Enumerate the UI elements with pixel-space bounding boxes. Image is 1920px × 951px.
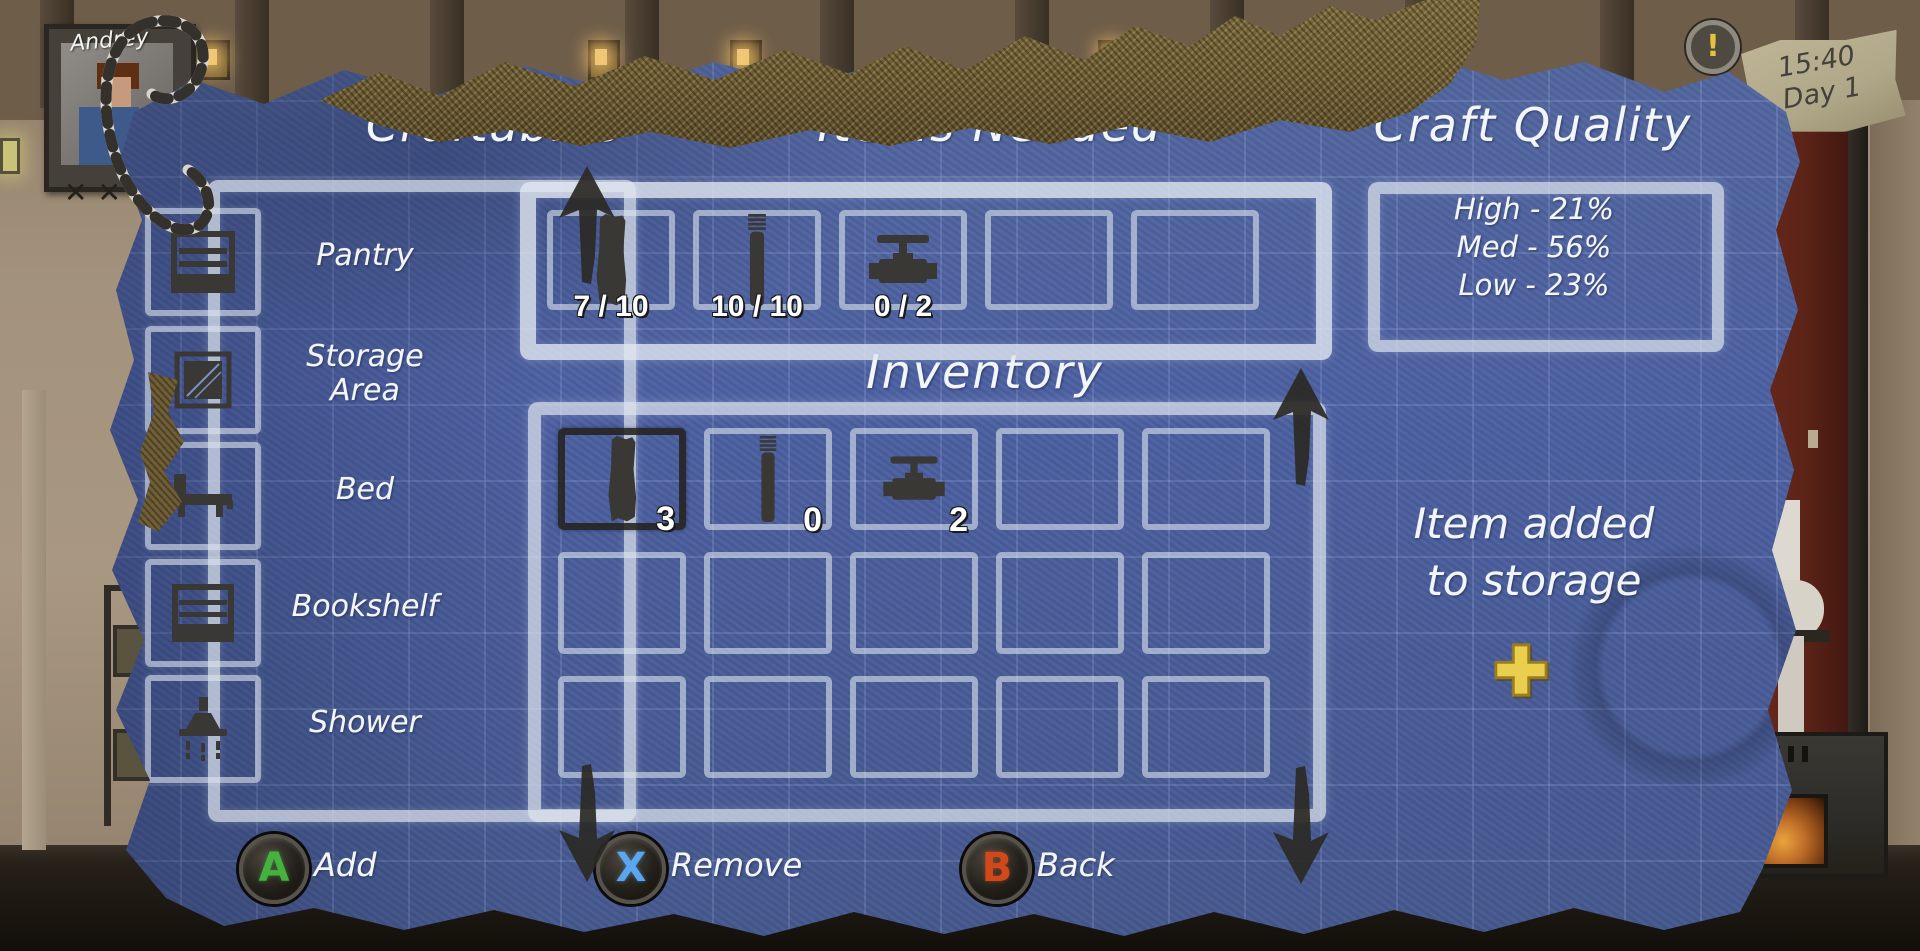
inventory-slot-empty[interactable] (1142, 428, 1270, 530)
craftable-label: Pantry (275, 239, 455, 273)
crafting-blueprint: Craftables Items Needed Craft Quality In… (104, 50, 1804, 938)
inventory-grid: 3 0 2 (528, 402, 1300, 796)
wall-pipe (1848, 110, 1868, 794)
inventory-slot-empty[interactable] (850, 676, 978, 778)
scroll-up-arrow[interactable] (558, 166, 616, 286)
inventory-slot-valve[interactable]: 2 (850, 428, 978, 530)
craftable-label: Storage Area (275, 340, 455, 408)
plus-icon (1492, 641, 1550, 699)
valve-icon (881, 451, 947, 507)
status-message: Item added to storage (1334, 495, 1734, 609)
inventory-count: 2 (949, 501, 968, 540)
needed-count: 7 / 10 (536, 290, 686, 324)
valve-icon (867, 229, 939, 291)
back-label: Back (1037, 846, 1115, 884)
alert-badge: ! (1686, 20, 1740, 74)
craft-quality-high: High - 21% (1368, 190, 1700, 228)
inventory-slot-empty[interactable] (996, 428, 1124, 530)
inventory-slot-empty[interactable] (704, 676, 832, 778)
button-a[interactable]: A (239, 834, 309, 904)
needed-count: 0 / 2 (828, 290, 978, 324)
inventory-slot-empty[interactable] (558, 552, 686, 654)
inventory-count: 0 (803, 501, 822, 540)
inventory-slot-plank[interactable]: 3 (558, 428, 686, 530)
inventory-slot-pipe[interactable]: 0 (704, 428, 832, 530)
bookshelf-icon (145, 559, 261, 667)
craftable-label: Shower (275, 706, 455, 740)
needed-slot-empty (985, 210, 1113, 310)
plank-icon (602, 436, 642, 522)
craft-quality-low: Low - 23% (1368, 266, 1700, 304)
wall-pillar (22, 390, 46, 850)
status-line1: Item added (1334, 495, 1734, 552)
craftable-label: Bookshelf (275, 590, 455, 624)
paperclip-icon (80, 8, 250, 248)
inventory-slot-empty[interactable] (996, 676, 1124, 778)
needed-slot-empty (1131, 210, 1259, 310)
craftable-row-shower[interactable]: Shower (145, 675, 485, 771)
craftable-row-bookshelf[interactable]: Bookshelf (145, 559, 485, 655)
exclamation-icon: ! (1706, 29, 1720, 64)
inventory-slot-empty[interactable] (996, 552, 1124, 654)
craftable-label: Bed (275, 473, 455, 507)
button-b[interactable]: B (962, 834, 1032, 904)
needed-count: 10 / 10 (682, 290, 832, 324)
craft-quality-med: Med - 56% (1368, 228, 1700, 266)
craftable-row-storage-area[interactable]: Storage Area (145, 326, 485, 422)
game-screen: Andrey ✕✕ 15:40 Day 1 ! Craftables Items… (0, 0, 1920, 951)
wall-lamp-icon (0, 138, 20, 174)
scroll-up-arrow[interactable] (1272, 368, 1330, 488)
inventory-slot-empty[interactable] (704, 552, 832, 654)
pipe-icon (756, 436, 780, 522)
status-line2: to storage (1334, 552, 1734, 609)
scroll-down-arrow[interactable] (1272, 764, 1330, 884)
add-label: Add (314, 846, 377, 884)
remove-label: Remove (671, 846, 802, 884)
inventory-slot-empty[interactable] (1142, 676, 1270, 778)
scroll-down-arrow[interactable] (558, 762, 616, 882)
inventory-count: 3 (656, 500, 675, 539)
shower-icon (145, 675, 261, 783)
inventory-slot-empty[interactable] (850, 552, 978, 654)
craftable-row-bed[interactable]: Bed (145, 442, 485, 538)
inventory-slot-empty[interactable] (1142, 552, 1270, 654)
door-handle (1808, 430, 1818, 448)
